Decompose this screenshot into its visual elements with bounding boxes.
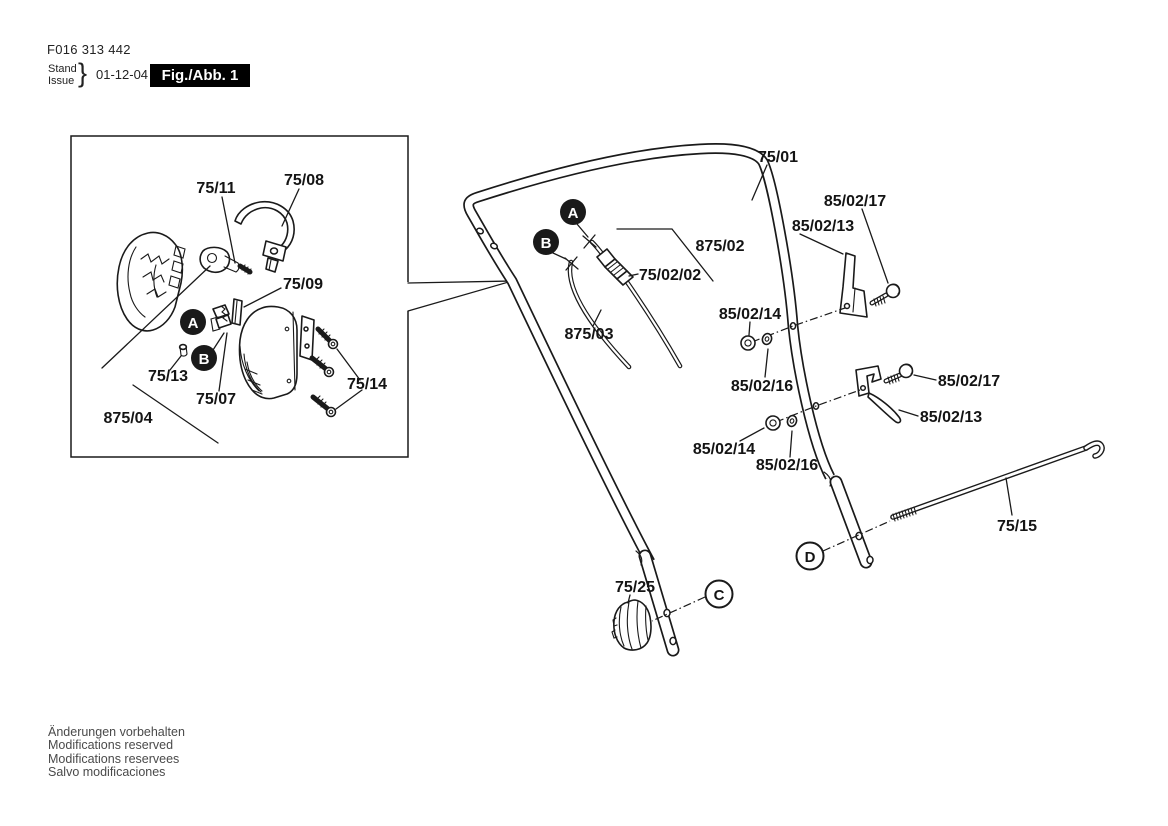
lever-part <box>235 202 294 272</box>
cable-adjuster-part <box>597 249 633 285</box>
svg-text:B: B <box>541 235 552 252</box>
nut-washer-lower <box>766 414 798 430</box>
badge-a-inset: A <box>180 309 206 335</box>
part-label-75-07: 75/07 <box>196 391 236 408</box>
part-label-875-03: 875/03 <box>565 326 614 343</box>
cable-clip-part <box>200 247 251 274</box>
bolt-top <box>872 284 900 306</box>
badge-b-inset: B <box>191 345 217 371</box>
part-label-85-02-17-top: 85/02/17 <box>824 193 886 210</box>
part-label-75-11: 75/11 <box>196 180 235 197</box>
bolt-lower <box>886 364 913 384</box>
part-label-875-02: 875/02 <box>696 238 745 255</box>
revision-line-en: Modifications reserved <box>48 739 185 752</box>
badge-d: D <box>797 543 824 570</box>
cable-bracket-top <box>840 253 867 317</box>
switch-housing-left-shell <box>117 232 185 330</box>
part-label-75-01: 75/01 <box>758 149 798 166</box>
svg-text:B: B <box>199 351 210 368</box>
revision-line-de: Änderungen vorbehalten <box>48 726 185 739</box>
badge-c: C <box>706 581 733 608</box>
svg-text:A: A <box>568 205 579 222</box>
part-label-75-25: 75/25 <box>615 579 655 596</box>
badge-b-main: B <box>533 229 559 255</box>
svg-text:A: A <box>188 315 199 332</box>
revision-notice: Änderungen vorbehalten Modifications res… <box>48 726 185 780</box>
nut-washer-upper <box>741 332 773 350</box>
badge-a-main: A <box>560 199 586 225</box>
detail-callout-lines <box>408 281 512 311</box>
mount-plate-part <box>300 316 314 360</box>
parts-catalog-page: F016 313 442 Stand Issue } 01-12-04 Fig.… <box>0 0 1168 826</box>
bowden-cables <box>565 235 680 367</box>
knob-part <box>612 600 651 650</box>
svg-text:C: C <box>714 587 725 604</box>
revision-line-fr: Modifications reservees <box>48 753 185 766</box>
link-rod-part <box>893 443 1102 521</box>
switch-housing-right-shell <box>240 306 298 398</box>
part-label-75-14: 75/14 <box>347 376 387 393</box>
latch-part <box>211 305 231 331</box>
part-label-85-02-14-upper: 85/02/14 <box>719 306 781 323</box>
svg-text:D: D <box>805 549 816 566</box>
screws-group <box>312 329 338 417</box>
pin-part <box>180 345 187 356</box>
part-label-75-09: 75/09 <box>283 276 323 293</box>
part-label-75-08: 75/08 <box>284 172 324 189</box>
cable-bracket-lower <box>856 366 900 423</box>
part-label-85-02-14-lower: 85/02/14 <box>693 441 755 458</box>
revision-line-es: Salvo modificaciones <box>48 766 185 779</box>
part-label-85-02-13-lower: 85/02/13 <box>920 409 982 426</box>
part-label-85-02-16-upper: 85/02/16 <box>731 378 793 395</box>
retainer-plate-part <box>232 299 242 325</box>
part-label-875-04: 875/04 <box>104 410 153 427</box>
part-label-85-02-13-top: 85/02/13 <box>792 218 854 235</box>
part-label-75-02-02: 75/02/02 <box>639 267 701 284</box>
part-label-85-02-17-lower: 85/02/17 <box>938 373 1000 390</box>
part-label-75-15: 75/15 <box>997 518 1037 535</box>
part-label-85-02-16-lower: 85/02/16 <box>756 457 818 474</box>
exploded-view-diagram: 75/11 75/08 75/09 75/13 75/07 875/04 75/… <box>0 0 1168 826</box>
part-label-75-13: 75/13 <box>148 368 188 385</box>
